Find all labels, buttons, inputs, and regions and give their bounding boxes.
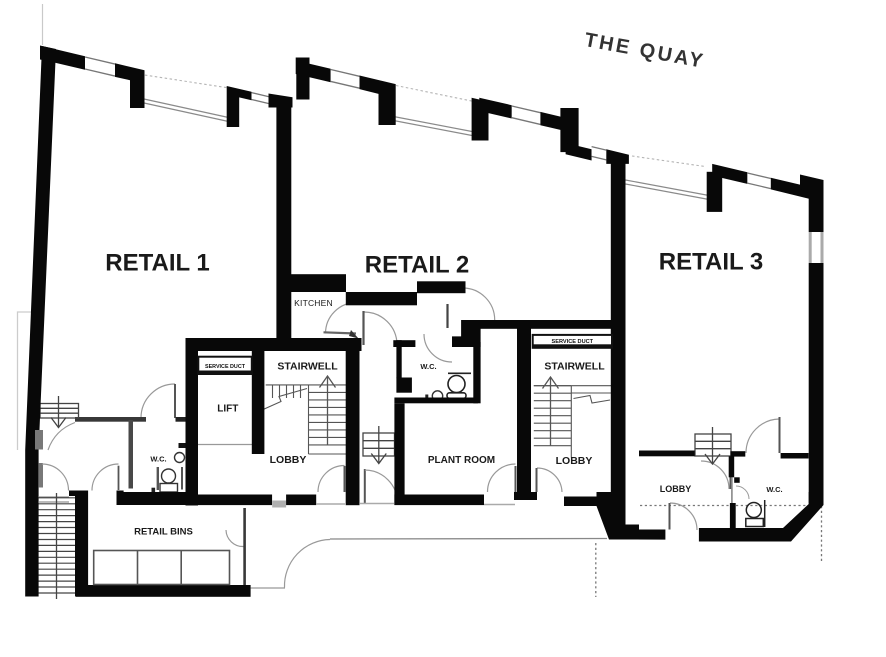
svg-text:LOBBY: LOBBY <box>556 455 593 467</box>
svg-text:RETAIL 3: RETAIL 3 <box>659 249 763 276</box>
svg-text:RETAIL 1: RETAIL 1 <box>105 250 209 277</box>
svg-text:LOBBY: LOBBY <box>270 454 307 466</box>
svg-text:PLANT ROOM: PLANT ROOM <box>428 455 495 466</box>
svg-text:W.C.: W.C. <box>766 485 782 494</box>
svg-text:RETAIL BINS: RETAIL BINS <box>134 527 193 538</box>
svg-text:W.C.: W.C. <box>150 454 166 463</box>
svg-text:KITCHEN: KITCHEN <box>294 298 333 308</box>
svg-text:W.C.: W.C. <box>420 362 436 371</box>
svg-text:LIFT: LIFT <box>217 404 238 415</box>
svg-text:SERVICE DUCT: SERVICE DUCT <box>552 339 594 345</box>
svg-text:LOBBY: LOBBY <box>660 484 692 494</box>
svg-text:SERVICE DUCT: SERVICE DUCT <box>205 364 246 370</box>
svg-text:STAIRWELL: STAIRWELL <box>277 361 338 373</box>
svg-text:STAIRWELL: STAIRWELL <box>544 360 605 372</box>
svg-text:RETAIL 2: RETAIL 2 <box>365 252 469 279</box>
